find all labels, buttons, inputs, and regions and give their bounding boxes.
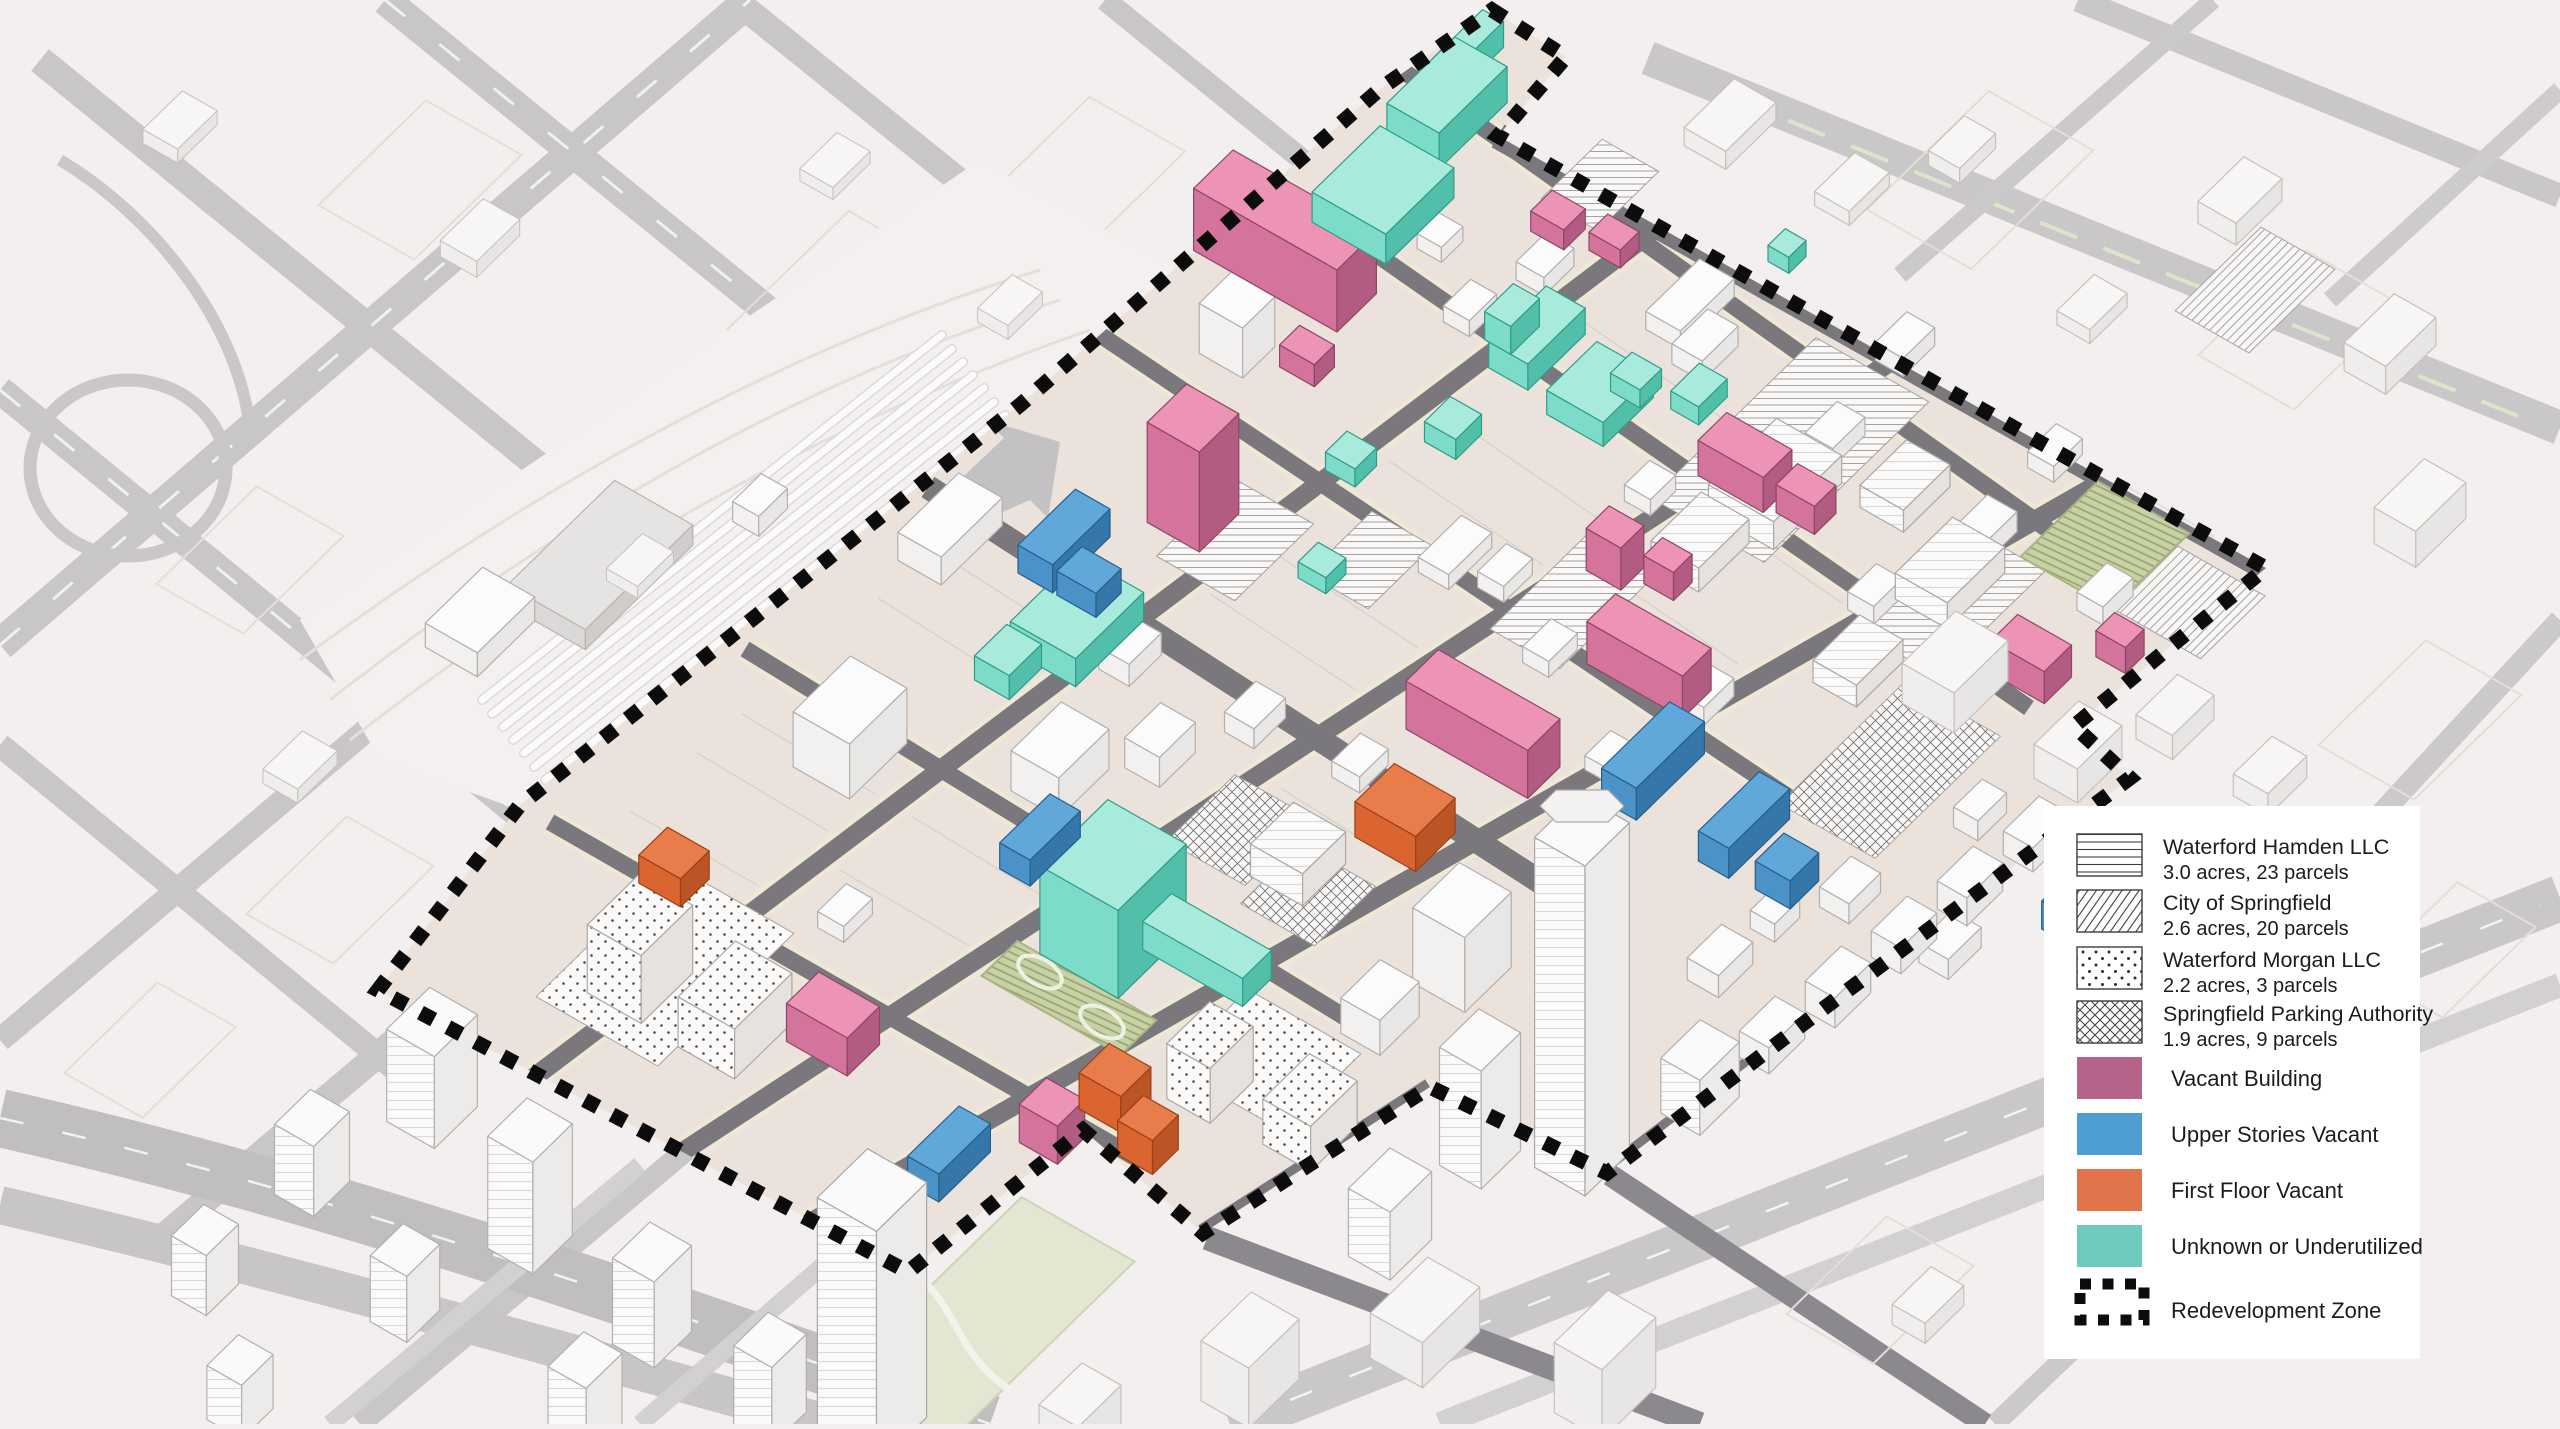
- svg-text:Waterford Morgan LLC: Waterford Morgan LLC: [2163, 948, 2381, 972]
- svg-text:2.6 acres, 20 parcels: 2.6 acres, 20 parcels: [2163, 918, 2349, 940]
- svg-text:Upper Stories Vacant: Upper Stories Vacant: [2171, 1122, 2378, 1147]
- svg-text:2.2 acres, 3 parcels: 2.2 acres, 3 parcels: [2163, 975, 2338, 997]
- svg-text:Vacant Building: Vacant Building: [2171, 1066, 2322, 1091]
- svg-text:City of Springfield: City of Springfield: [2163, 891, 2332, 915]
- svg-text:Waterford Hamden LLC: Waterford Hamden LLC: [2163, 835, 2389, 859]
- svg-text:First Floor Vacant: First Floor Vacant: [2171, 1178, 2343, 1203]
- svg-text:Unknown or Underutilized: Unknown or Underutilized: [2171, 1234, 2423, 1259]
- svg-text:3.0 acres, 23 parcels: 3.0 acres, 23 parcels: [2163, 862, 2349, 884]
- svg-text:Springfield Parking Authority: Springfield Parking Authority: [2163, 1002, 2433, 1026]
- svg-text:1.9 acres, 9 parcels: 1.9 acres, 9 parcels: [2163, 1029, 2338, 1051]
- svg-text:Redevelopment Zone: Redevelopment Zone: [2171, 1298, 2381, 1323]
